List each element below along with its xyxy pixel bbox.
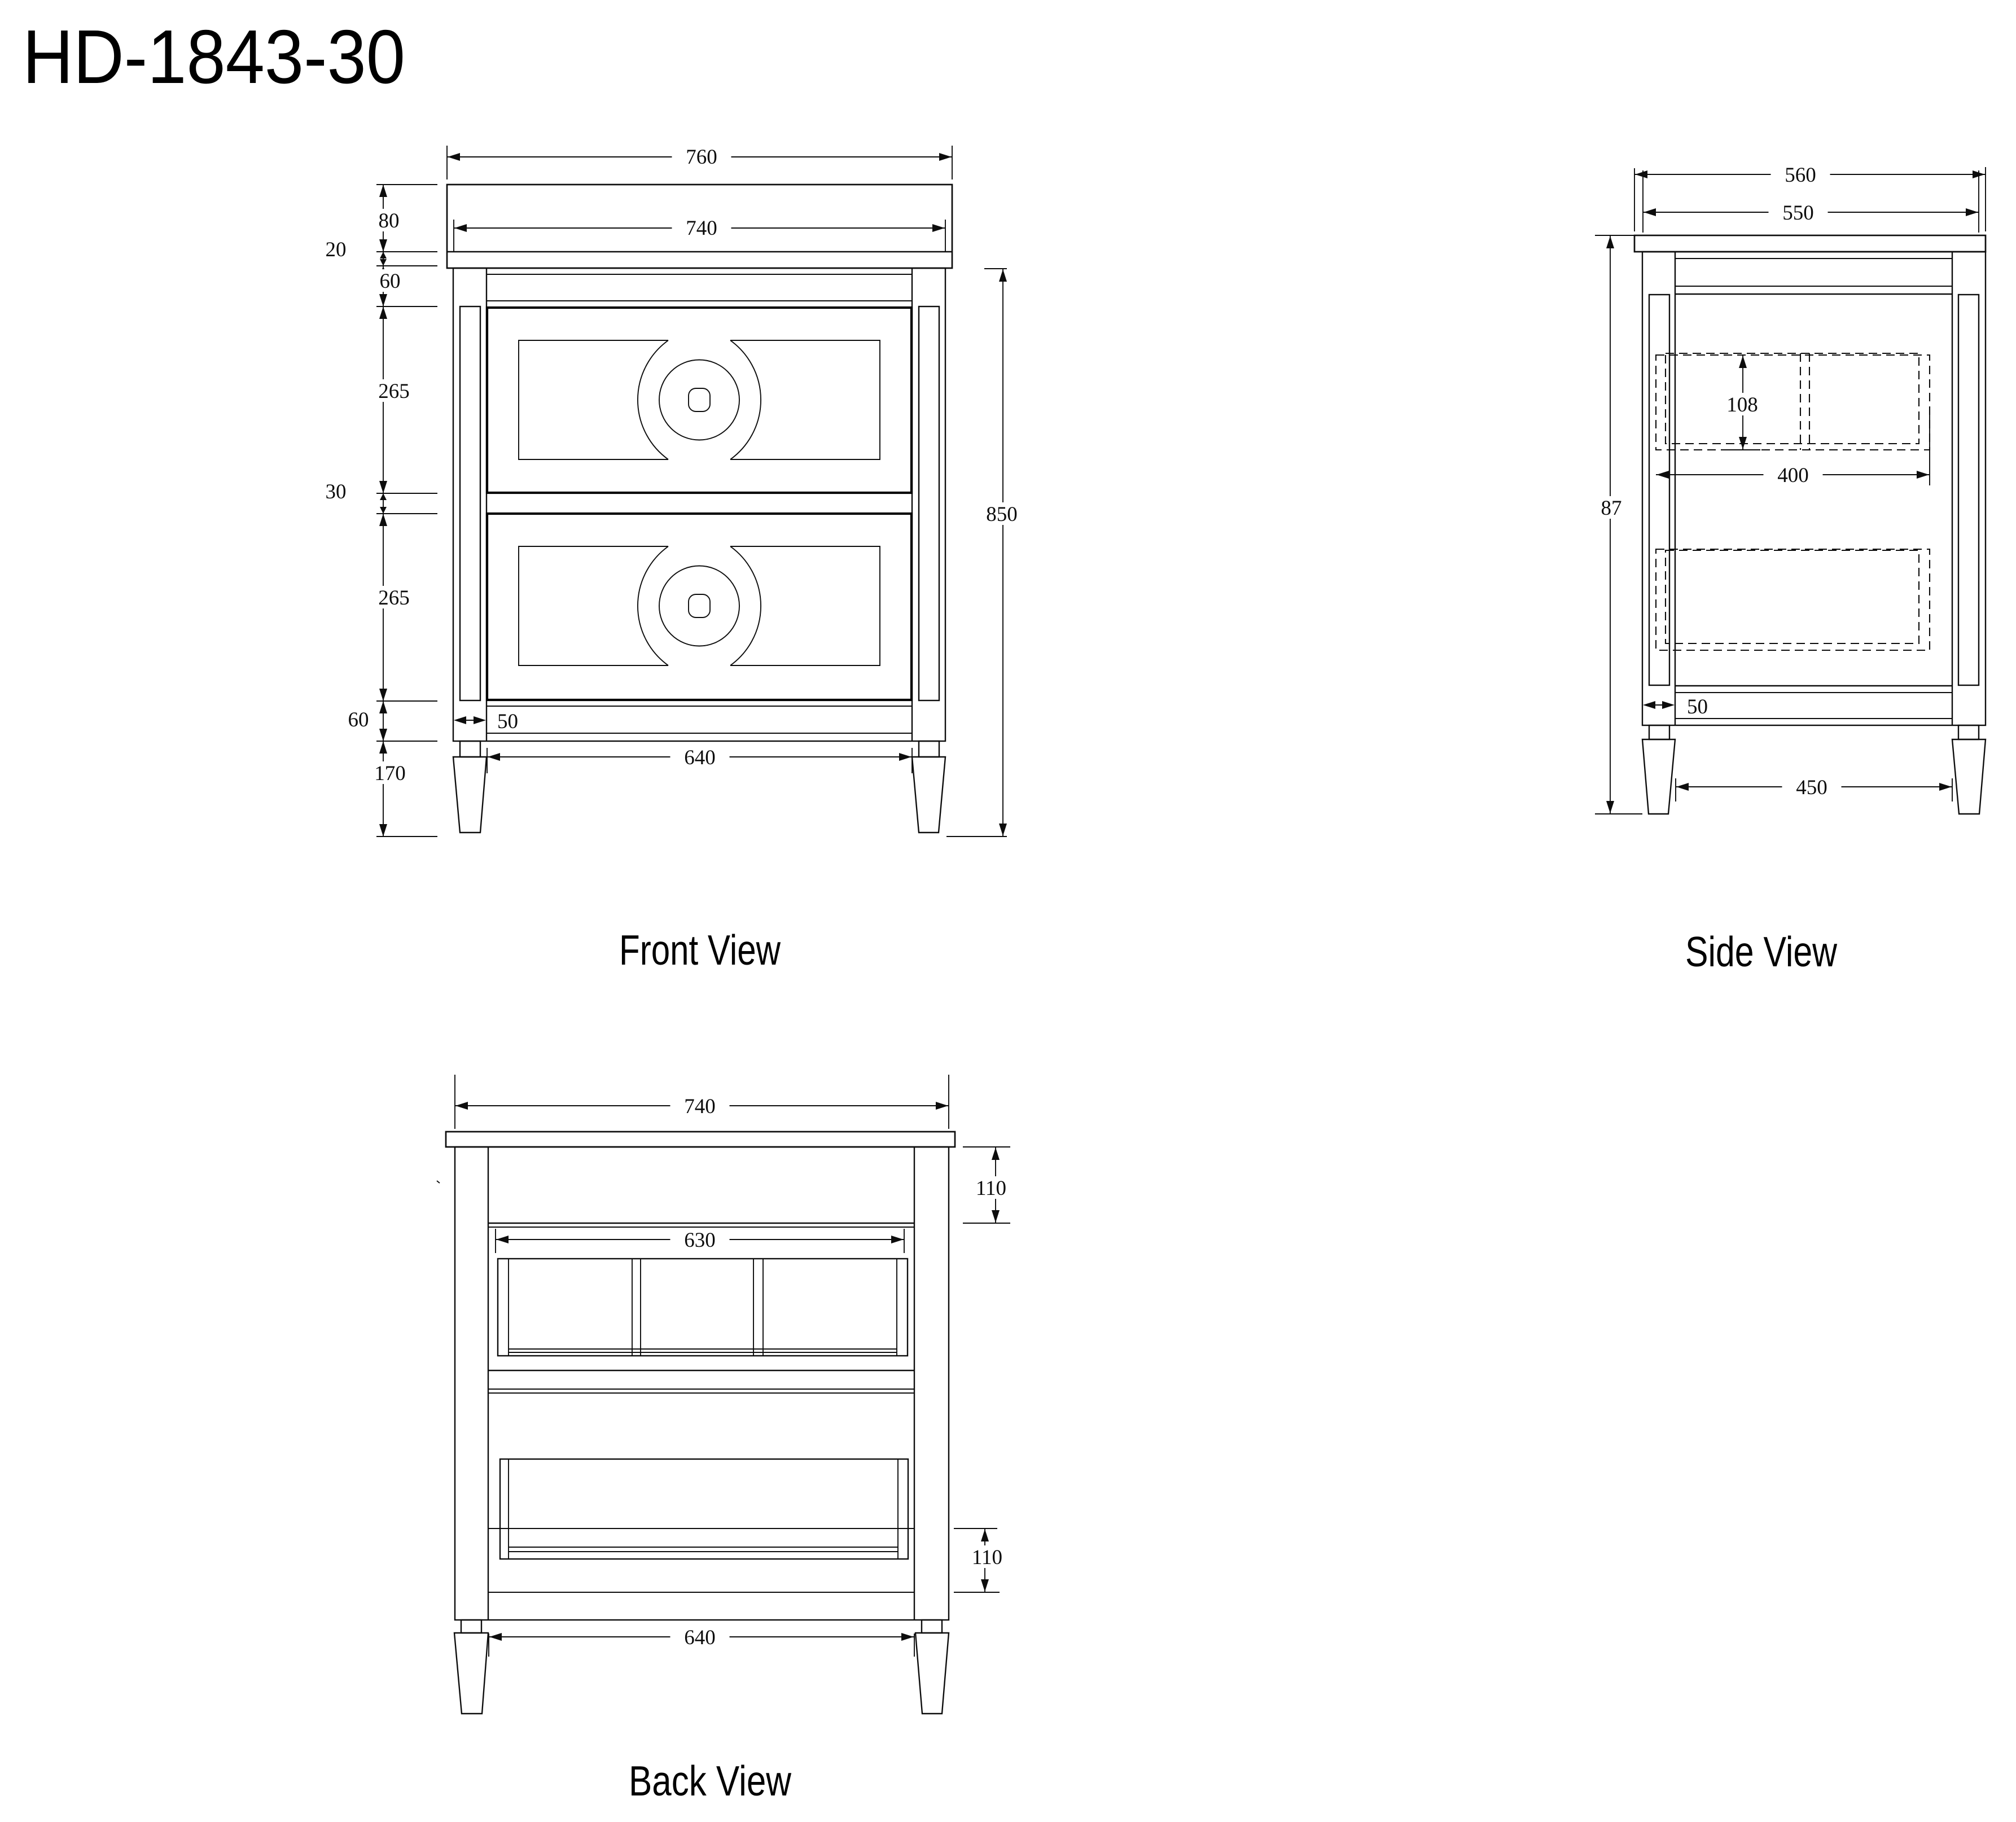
svg-text:740: 740 <box>686 217 717 240</box>
svg-text:Side View: Side View <box>1685 928 1838 975</box>
svg-text:60: 60 <box>348 708 369 732</box>
svg-text:Back View: Back View <box>629 1757 792 1805</box>
svg-text:760: 760 <box>686 146 717 169</box>
svg-text:640: 640 <box>684 1626 716 1649</box>
svg-text:HD-1843-30: HD-1843-30 <box>23 14 405 99</box>
svg-text:740: 740 <box>684 1095 716 1118</box>
svg-text:640: 640 <box>684 746 716 769</box>
svg-text:87: 87 <box>1601 497 1622 520</box>
svg-text:30: 30 <box>326 480 347 503</box>
svg-text:560: 560 <box>1785 164 1816 187</box>
svg-text:550: 550 <box>1782 202 1814 225</box>
svg-text:630: 630 <box>684 1229 716 1252</box>
svg-text:110: 110 <box>976 1177 1006 1200</box>
svg-text:108: 108 <box>1726 393 1758 417</box>
svg-text:Front View: Front View <box>619 926 781 974</box>
svg-text:265: 265 <box>378 586 410 610</box>
svg-text:80: 80 <box>379 209 400 233</box>
svg-text:850: 850 <box>986 503 1018 526</box>
svg-text:50: 50 <box>1687 695 1708 719</box>
svg-text:110: 110 <box>972 1546 1002 1569</box>
svg-text:170: 170 <box>374 762 406 785</box>
svg-text:60: 60 <box>380 270 401 293</box>
svg-text:50: 50 <box>497 710 518 733</box>
svg-text:450: 450 <box>1796 776 1827 799</box>
svg-text:20: 20 <box>326 238 347 261</box>
svg-text:400: 400 <box>1777 464 1809 487</box>
svg-text:265: 265 <box>378 380 410 403</box>
